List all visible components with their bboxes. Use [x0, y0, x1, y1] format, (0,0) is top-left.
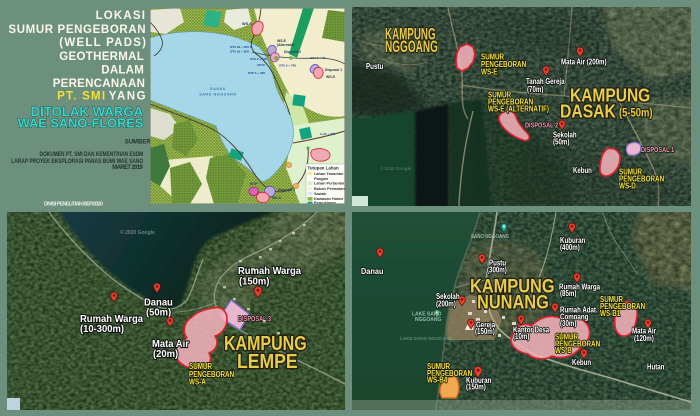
- svg-text:GEOTHERMAL: GEOTHERMAL: [59, 51, 144, 63]
- svg-text:LOKASI: LOKASI: [96, 10, 145, 22]
- svg-text:(5-50m): (5-50m): [619, 107, 653, 120]
- svg-text:(Alternatif): (Alternatif): [277, 43, 294, 47]
- svg-text:A-21 + 350: A-21 + 350: [320, 132, 336, 136]
- svg-text:SUMUR PENGEBORAN: SUMUR PENGEBORAN: [8, 24, 145, 36]
- svg-text:SANO NGGOANG: SANO NGGOANG: [471, 234, 509, 240]
- svg-text:Disposal 3: Disposal 3: [278, 188, 295, 192]
- svg-text:NGGOANG: NGGOANG: [415, 317, 442, 323]
- svg-text:WS-B4: WS-B4: [427, 375, 447, 385]
- svg-text:(10m): (10m): [513, 332, 530, 341]
- svg-text:WS-B1: WS-B1: [600, 308, 620, 318]
- svg-text:(150m): (150m): [475, 327, 495, 336]
- svg-text:DISPOSAL 3: DISPOSAL 3: [238, 315, 272, 323]
- svg-text:WS-A: WS-A: [272, 196, 282, 200]
- svg-text:(200m): (200m): [436, 300, 456, 309]
- svg-text:(30m): (30m): [560, 319, 577, 328]
- svg-text:DALAM: DALAM: [101, 64, 144, 76]
- svg-text:Disposal 1: Disposal 1: [325, 68, 342, 72]
- svg-text:(400m): (400m): [560, 243, 580, 252]
- svg-text:(WELL PADS): (WELL PADS): [59, 37, 146, 49]
- svg-text:Pustu: Pustu: [366, 62, 383, 71]
- svg-text:STA 0 + 700: STA 0 + 700: [279, 64, 296, 68]
- svg-text:PT. SMI: PT. SMI: [57, 91, 105, 103]
- svg-text:Hutan: Hutan: [647, 363, 664, 372]
- svg-text:(150m): (150m): [466, 383, 486, 392]
- svg-text:STA 5 + 300: STA 5 + 300: [248, 71, 265, 75]
- svg-text:DANAU: DANAU: [210, 87, 226, 91]
- svg-text:(20m): (20m): [153, 349, 178, 361]
- svg-text:(70m): (70m): [527, 85, 544, 94]
- svg-text:(10-300m): (10-300m): [80, 324, 124, 336]
- svg-text:WTP: WTP: [250, 182, 258, 186]
- svg-text:STA 2 + 100: STA 2 + 100: [250, 57, 267, 61]
- svg-text:AP10: AP10: [257, 63, 265, 67]
- svg-text:SANO NGGOANG: SANO NGGOANG: [199, 93, 237, 97]
- svg-text:MARET 2019: MARET 2019: [112, 165, 143, 171]
- svg-text:WS-D: WS-D: [619, 181, 636, 191]
- svg-text:Kebun: Kebun: [572, 358, 591, 367]
- svg-text:NUNANG: NUNANG: [477, 291, 549, 313]
- svg-text:STA 19 + 300: STA 19 + 300: [230, 50, 249, 54]
- svg-text:WS-E (ALTERNATIF): WS-E (ALTERNATIF): [488, 104, 550, 114]
- svg-text:WS-B: WS-B: [555, 345, 572, 355]
- svg-text:WS-D: WS-D: [326, 75, 336, 79]
- svg-text:NGGOANG: NGGOANG: [385, 38, 438, 56]
- svg-text:WAE SANO-FLORES: WAE SANO-FLORES: [18, 115, 144, 130]
- svg-text:Danau: Danau: [361, 267, 384, 276]
- svg-text:(150m): (150m): [239, 276, 269, 288]
- svg-text:STA 18 + 500 S: STA 18 + 500 S: [230, 45, 252, 49]
- svg-text:SUMBER:: SUMBER:: [125, 140, 150, 146]
- svg-text:Kebun: Kebun: [573, 166, 592, 175]
- svg-text:(300m): (300m): [487, 266, 507, 275]
- svg-text:(50m): (50m): [553, 138, 570, 147]
- svg-text:WS-B: WS-B: [242, 22, 252, 26]
- svg-text:Tutupan Lahan: Tutupan Lahan: [308, 166, 339, 171]
- svg-text:DIVISI PENELITIAN BEP/2020: DIVISI PENELITIAN BEP/2020: [44, 202, 103, 208]
- svg-text:YANG: YANG: [109, 91, 146, 103]
- svg-text:DASAK: DASAK: [560, 100, 616, 122]
- svg-text:© 2020 Google: © 2020 Google: [120, 229, 155, 236]
- svg-text:Mata Air (200m): Mata Air (200m): [561, 58, 607, 67]
- svg-text:(120m): (120m): [634, 334, 654, 343]
- svg-text:(85m): (85m): [560, 289, 577, 298]
- svg-text:WS-A: WS-A: [189, 377, 206, 387]
- svg-text:WS-E: WS-E: [481, 67, 498, 77]
- svg-text:DISPOSAL 1: DISPOSAL 1: [641, 146, 675, 154]
- svg-text:DISPOSAL 2: DISPOSAL 2: [525, 122, 559, 130]
- svg-text:© 2020 Google: © 2020 Google: [380, 165, 412, 171]
- svg-text:LAKE SANO NGGOANG: LAKE SANO NGGOANG: [400, 336, 453, 341]
- svg-text:Disposal 2: Disposal 2: [284, 50, 301, 54]
- svg-text:DOKUMEN PT. SMI DAN KEMENTRIAN: DOKUMEN PT. SMI DAN KEMENTRIAN ESDM: [40, 152, 144, 159]
- svg-text:PERENCANAAN: PERENCANAAN: [53, 78, 145, 90]
- svg-text:LEMPE: LEMPE: [237, 350, 298, 372]
- svg-text:STA 1 + 00: STA 1 + 00: [310, 56, 326, 60]
- svg-text:(50m): (50m): [146, 307, 171, 319]
